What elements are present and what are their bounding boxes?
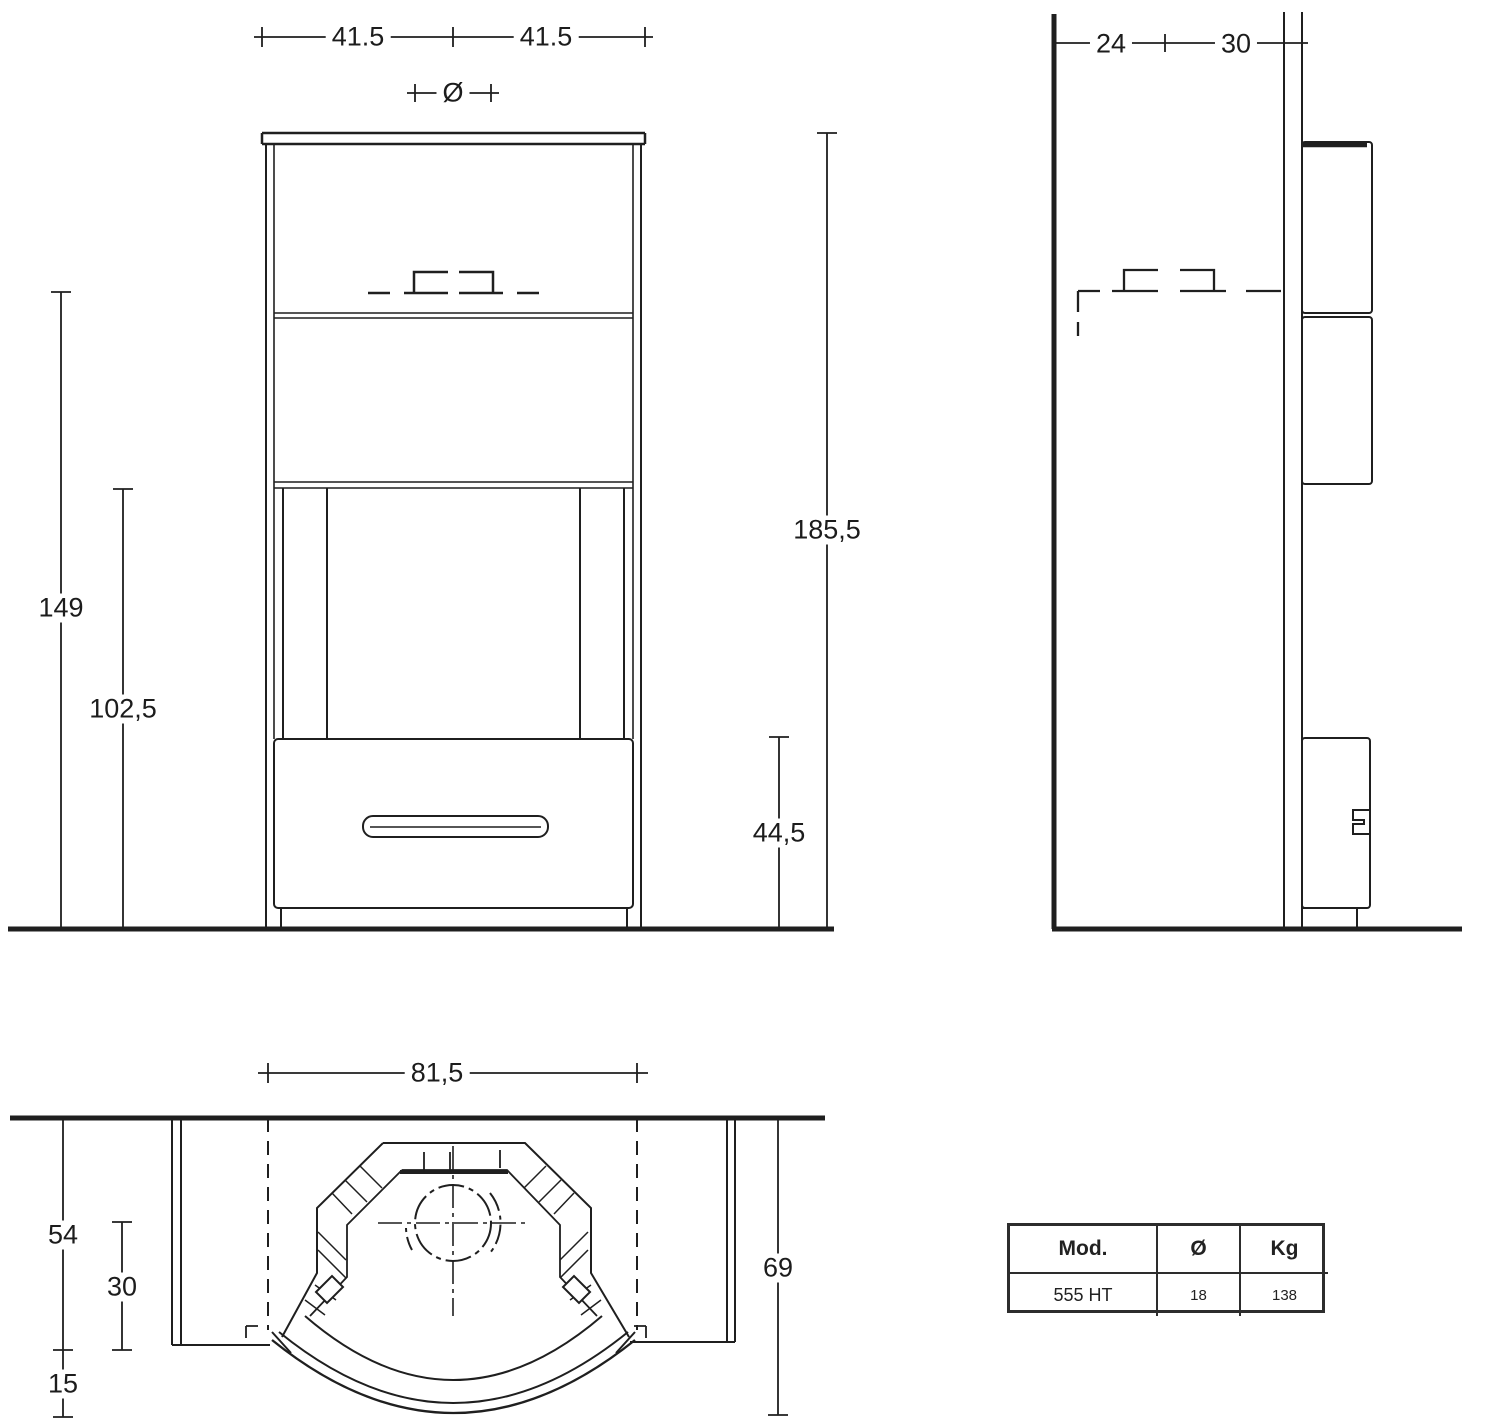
side-mid-section [1302, 317, 1372, 484]
plan-hinge-left [316, 1276, 343, 1303]
spec-table-value-diameter: 18 [1158, 1274, 1241, 1316]
plan-bow-door-mid-arc [279, 1332, 628, 1403]
plan-right-edge [630, 1118, 735, 1342]
side-top-section [1302, 142, 1372, 313]
side-view [1052, 12, 1462, 929]
plan-bow-door-end-caps [272, 1332, 635, 1353]
plan-back-plate-ticks [424, 1150, 500, 1172]
dim-label-rear-depth: 30 [1215, 30, 1257, 59]
plan-flue-outer-arc-left [406, 1228, 412, 1250]
front-panel-divider-1 [274, 313, 633, 318]
side-drawer-handle-notch [1353, 810, 1370, 834]
dim-label-half-width-left: 41.5 [326, 23, 391, 52]
spec-table-header-model: Mod. [1010, 1226, 1158, 1274]
plan-left-edge [172, 1118, 270, 1345]
dim-label-plan-width: 81,5 [405, 1059, 470, 1088]
front-outer-sides [266, 144, 641, 929]
spec-table-header-diameter: Ø [1158, 1226, 1241, 1274]
drawing-linework [0, 0, 1500, 1427]
plan-hinge-right [563, 1276, 590, 1303]
spec-table-value-model: 555 HT [1010, 1274, 1158, 1316]
side-rear-panel-lines [1284, 12, 1302, 929]
dim-label-base-height: 44,5 [747, 819, 812, 848]
front-top-cap [262, 133, 645, 144]
top-view [10, 1063, 825, 1417]
plan-bow-door-inner-arc [305, 1316, 602, 1380]
front-panel-divider-2 [274, 482, 633, 488]
front-drawer [274, 739, 633, 908]
spec-table-header-weight: Kg [1241, 1226, 1328, 1274]
front-view [8, 27, 837, 929]
side-base [1302, 908, 1357, 929]
front-legs [281, 908, 627, 929]
stove-technical-drawing: 41.5 41.5 Ø 149 102,5 185,5 44,5 24 30 8… [0, 0, 1500, 1427]
dim-label-wall-clearance: 24 [1090, 30, 1132, 59]
dim-label-depth-mid: 30 [101, 1273, 143, 1302]
front-firebox-pillars [283, 488, 624, 739]
dim-label-total-height: 185,5 [787, 516, 867, 545]
dim-label-depth-front: 54 [42, 1221, 84, 1250]
dim-label-flue-height: 149 [32, 594, 89, 623]
front-dimension-lines [51, 27, 837, 929]
dim-label-total-depth: 69 [757, 1254, 799, 1283]
dim-label-depth-bow: 15 [42, 1370, 84, 1399]
dim-label-half-width-right: 41.5 [514, 23, 579, 52]
dim-line-top-width [254, 27, 653, 47]
dim-label-flue-diameter: Ø [436, 79, 469, 108]
spec-table-value-weight: 138 [1241, 1274, 1328, 1316]
front-damper-dashed-symbol [368, 272, 539, 293]
front-stove-body [262, 133, 645, 929]
spec-table: Mod. Ø Kg 555 HT 18 138 [1007, 1223, 1325, 1313]
side-damper-dashed-symbol [1078, 270, 1281, 336]
dim-label-opening-height: 102,5 [83, 695, 163, 724]
